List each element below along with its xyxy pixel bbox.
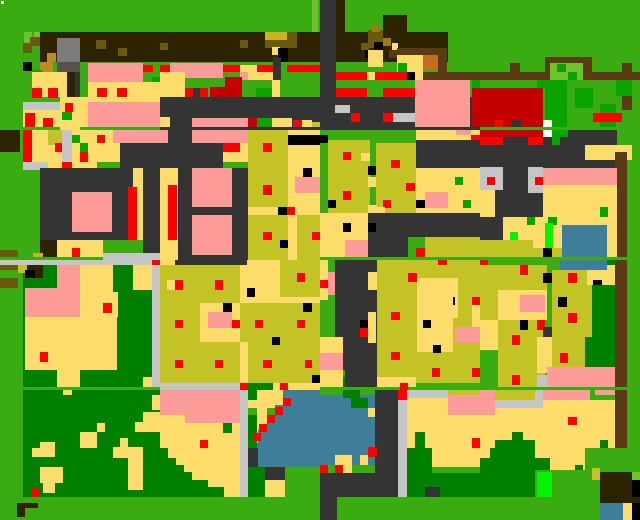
map-rect-sa <box>160 72 185 97</box>
map-rect-rd <box>40 352 48 362</box>
map-rect-rd <box>528 137 543 145</box>
map-rect-pk <box>543 168 617 185</box>
map-rect-bk <box>407 72 415 80</box>
map-rect-rd <box>391 160 400 168</box>
map-rect-rd <box>48 88 58 98</box>
map-rect-rd <box>520 265 528 275</box>
map-rect-sa <box>368 312 376 343</box>
map-rect-sa <box>368 272 377 290</box>
map-rect-fg <box>592 285 615 370</box>
map-rect-pk <box>415 80 470 127</box>
map-rect-pg <box>455 177 463 185</box>
map-rect-rd <box>257 65 273 72</box>
map-rect-rd <box>512 375 520 385</box>
map-rect-rd <box>280 383 288 390</box>
map-rect-fg <box>248 383 273 390</box>
map-rect-bk <box>25 270 35 278</box>
map-rect-dg <box>232 168 248 260</box>
map-rect-rd <box>240 383 248 390</box>
map-rect-bk <box>416 200 425 208</box>
map-rect-bk <box>320 135 328 143</box>
map-rect-wh <box>1 1 4 4</box>
map-rect-sa <box>288 383 320 390</box>
map-rect-wa <box>562 225 607 257</box>
map-rect-sb <box>583 57 592 80</box>
map-rect-sa <box>240 143 248 152</box>
map-rect-sa <box>607 225 617 257</box>
map-rect-sa <box>97 423 105 432</box>
map-rect-pk <box>208 312 232 328</box>
map-rect-sa <box>80 292 118 317</box>
map-rect-pk <box>160 390 240 415</box>
map-rect-rd <box>283 398 291 406</box>
map-rect-sa <box>152 395 160 410</box>
map-rect-rd <box>398 390 407 400</box>
map-rect-db <box>336 0 345 32</box>
map-rect-dg <box>512 120 521 127</box>
map-rect-sb <box>615 260 627 387</box>
map-rect-rd <box>223 143 240 152</box>
map-rect-rd <box>320 465 328 473</box>
map-rect-lb <box>372 25 380 32</box>
map-rect-fg <box>480 470 535 497</box>
map-rect-rd <box>287 65 320 72</box>
map-rect-rd <box>215 280 223 290</box>
map-rect-dg <box>345 370 377 387</box>
map-rect-sa <box>248 72 273 80</box>
map-rect-ol <box>425 237 480 257</box>
map-rect-rd <box>432 368 440 377</box>
map-rect-rd <box>232 320 240 328</box>
map-rect-rd <box>65 103 73 112</box>
map-rect-dg <box>192 207 232 215</box>
map-rect-bk <box>223 303 232 312</box>
game-map-canvas[interactable] <box>0 0 640 520</box>
map-rect-dg <box>120 143 160 168</box>
map-rect-pk <box>480 390 495 415</box>
map-rect-sa <box>623 503 632 520</box>
map-rect-fg <box>248 415 257 448</box>
map-rect-dr <box>225 77 242 87</box>
map-rect-mu <box>33 253 43 257</box>
map-rect-sa <box>120 438 128 447</box>
map-rect-sa <box>135 422 143 432</box>
map-rect-rd <box>335 465 343 473</box>
map-rect-bk <box>423 320 431 328</box>
map-rect-rd <box>472 368 480 377</box>
map-rect-sv <box>407 390 448 398</box>
map-rect-dg <box>320 473 375 497</box>
map-rect-bk <box>558 297 567 307</box>
map-rect-bk <box>632 503 640 520</box>
map-rect-bk <box>368 223 376 232</box>
map-rect-ol <box>248 130 288 207</box>
map-rect-sa <box>167 280 175 290</box>
map-rect-pk <box>425 192 448 208</box>
map-rect-pk <box>520 295 545 312</box>
map-rect-pg <box>72 135 80 143</box>
map-rect-rd <box>293 120 302 127</box>
map-rect-sa <box>480 190 495 217</box>
map-rect-rd <box>25 113 35 127</box>
map-rect-fg <box>407 448 432 473</box>
map-rect-sa <box>32 448 40 457</box>
map-rect-sv <box>398 400 407 497</box>
map-rect-sv <box>240 390 248 497</box>
map-rect-pk <box>192 118 248 127</box>
map-rect-mb <box>0 250 18 257</box>
map-rect-sa <box>43 483 55 493</box>
map-rect-sa <box>302 120 312 127</box>
map-rect-sa <box>415 72 423 80</box>
map-rect-rd <box>259 424 267 432</box>
map-rect-mb <box>361 43 369 50</box>
map-rect-pg <box>256 88 272 97</box>
map-rect-rd <box>185 88 193 97</box>
map-rect-dg <box>375 390 400 497</box>
map-rect-wa <box>560 260 607 270</box>
map-rect-db <box>67 72 75 97</box>
map-rect-fg <box>160 448 168 497</box>
map-rect-sv <box>393 113 415 122</box>
map-rect-pg <box>257 118 272 127</box>
map-rect-bk <box>247 288 255 297</box>
map-rect-rd <box>267 415 275 423</box>
map-rect-sa <box>143 377 152 387</box>
map-rect-rd <box>32 488 40 497</box>
map-rect-rd <box>263 185 272 195</box>
map-rect-ng <box>545 223 553 248</box>
map-rect-pg <box>398 63 407 72</box>
map-rect-rd <box>472 297 480 305</box>
map-rect-dg <box>368 213 408 257</box>
map-rect-pk <box>595 390 617 395</box>
map-rect-sa <box>143 412 160 432</box>
map-rect-sb <box>389 50 397 58</box>
map-rect-rd <box>375 72 407 80</box>
map-rect-sb <box>397 48 447 55</box>
map-rect-fg <box>223 423 232 433</box>
map-rect-sv <box>23 102 60 110</box>
map-rect-st <box>57 38 80 62</box>
map-rect-sa <box>80 102 88 127</box>
map-rect-bk <box>543 273 552 283</box>
map-rect-lb <box>383 38 391 46</box>
map-rect-sa <box>80 432 97 448</box>
map-rect-rd <box>360 328 368 337</box>
map-rect-sa <box>57 370 80 387</box>
map-rect-g <box>627 160 640 257</box>
map-rect-lg <box>632 472 640 480</box>
map-rect-pk <box>25 288 80 317</box>
map-rect-wa <box>258 430 320 467</box>
map-rect-sa <box>63 390 72 395</box>
map-rect-sa <box>265 480 285 497</box>
map-rect-mb <box>23 43 32 53</box>
map-rect-sa <box>368 50 383 67</box>
map-rect-pk <box>320 353 343 370</box>
map-rect-rd <box>23 130 32 162</box>
map-rect-dg <box>143 168 160 257</box>
map-rect-sa <box>240 342 248 383</box>
map-rect-bk <box>272 337 280 345</box>
map-rect-rd <box>287 207 295 215</box>
map-rect-bk <box>433 345 441 353</box>
map-rect-sa <box>223 152 248 162</box>
map-rect-rd <box>568 417 577 425</box>
map-rect-sv <box>535 390 543 400</box>
map-rect-dg <box>273 57 281 80</box>
map-rect-rd <box>336 88 367 97</box>
map-rect-mb <box>287 32 297 48</box>
map-rect-sa <box>133 265 152 290</box>
map-rect-mb <box>240 40 248 48</box>
map-rect-pg <box>575 88 593 108</box>
map-rect-sv <box>160 383 240 390</box>
map-rect-ol <box>248 215 320 260</box>
map-rect-pk <box>543 390 590 400</box>
map-rect-pk <box>456 130 471 135</box>
map-rect-pg <box>527 217 535 225</box>
map-rect-wh <box>543 120 552 127</box>
map-rect-rd <box>215 360 223 368</box>
map-rect-dg <box>178 143 192 260</box>
map-rect-rd <box>560 353 568 363</box>
map-rect-dg <box>425 487 440 497</box>
map-rect-pk <box>295 177 320 193</box>
map-rect-bk <box>280 240 288 248</box>
map-rect-rd <box>438 260 447 265</box>
map-rect-rd <box>263 232 272 240</box>
map-rect-rd <box>160 65 170 72</box>
map-rect-rd <box>472 438 480 448</box>
map-rect-rd <box>32 88 42 98</box>
map-rect-bk <box>543 248 552 257</box>
map-rect-fg <box>480 458 550 470</box>
map-rect-rd <box>383 113 393 122</box>
map-rect-rd <box>223 65 240 72</box>
map-rect-rd <box>275 407 283 415</box>
map-rect-fg <box>343 390 360 398</box>
map-rect-rd <box>43 118 53 127</box>
map-rect-pg <box>552 130 568 137</box>
map-rect-rd <box>255 320 263 328</box>
map-rect-pg <box>62 112 72 120</box>
map-rect-wa <box>600 503 623 520</box>
map-rect-sa <box>113 447 143 458</box>
map-rect-rd <box>368 447 377 457</box>
map-rect-pg <box>472 80 480 88</box>
map-rect-dg <box>408 213 480 237</box>
map-rect-pk <box>113 130 160 143</box>
map-rect-sb <box>510 63 520 72</box>
map-rect-sa <box>480 320 498 350</box>
map-rect-sa <box>160 117 170 127</box>
map-rect-pk <box>72 192 112 232</box>
map-rect-fg <box>407 473 480 497</box>
map-rect-sa <box>160 415 185 423</box>
map-rect-fg <box>248 390 257 400</box>
map-rect-sa <box>367 72 375 80</box>
map-rect-pk <box>192 168 232 207</box>
map-rect-rd <box>416 248 425 257</box>
map-rect-fg <box>585 337 592 370</box>
map-rect-rd <box>200 88 208 97</box>
map-rect-ol <box>495 390 535 400</box>
map-rect-pk <box>88 63 143 82</box>
map-rect-wh <box>543 130 552 137</box>
map-rect-fg <box>351 398 368 408</box>
map-rect-sv <box>103 253 160 260</box>
map-rect-ob <box>423 55 438 70</box>
map-rect-dr <box>248 118 257 127</box>
map-rect-sv <box>495 400 543 408</box>
map-rect-rd <box>312 232 320 240</box>
map-rect-dr <box>480 130 543 137</box>
map-rect-rd <box>406 183 415 191</box>
map-rect-sa <box>376 377 416 387</box>
map-rect-pk <box>455 327 480 343</box>
map-rect-rd <box>97 135 105 143</box>
map-rect-sa <box>360 455 368 465</box>
map-rect-lg <box>312 0 318 32</box>
map-rect-rd <box>263 360 272 368</box>
map-rect-fg <box>512 432 523 440</box>
map-rect-mb <box>0 278 18 288</box>
map-rect-ol <box>592 468 600 480</box>
map-rect-sa <box>272 118 292 127</box>
map-rect-rd <box>343 152 351 160</box>
map-rect-gb <box>57 62 80 72</box>
map-rect-rd <box>487 177 495 185</box>
map-rect-rd <box>103 303 112 313</box>
map-rect-mb <box>160 43 168 50</box>
map-rect-dg <box>320 497 337 520</box>
map-rect-sb <box>423 72 640 80</box>
map-rect-dg <box>168 130 192 143</box>
map-rect-pk <box>547 367 615 387</box>
map-rect-rd <box>297 320 305 328</box>
map-rect-rd <box>72 248 80 257</box>
map-rect-dr <box>472 88 480 127</box>
map-rect-sa <box>272 80 280 97</box>
map-rect-pk <box>185 415 240 423</box>
map-rect-bk <box>23 62 32 71</box>
map-rect-sv <box>62 130 72 162</box>
map-rect-rd <box>568 313 577 323</box>
map-rect-ol <box>312 122 320 127</box>
map-rect-bk <box>360 320 368 328</box>
map-rect-rd <box>175 320 183 328</box>
map-rect-rd <box>495 120 503 127</box>
map-rect-rd <box>391 352 400 360</box>
map-rect-pg <box>616 80 632 96</box>
map-rect-pg <box>537 80 545 88</box>
map-rect-rd <box>568 273 577 283</box>
map-rect-pg <box>600 207 608 217</box>
map-rect-fg <box>176 465 184 497</box>
map-rect-sa <box>361 153 370 161</box>
map-rect-rd <box>128 187 137 240</box>
map-rect-sb <box>615 390 627 448</box>
map-rect-ol <box>240 303 320 383</box>
map-rect-fg <box>168 458 176 497</box>
map-rect-pk <box>345 240 368 257</box>
map-rect-rd <box>535 177 543 185</box>
map-rect-sa <box>472 305 480 327</box>
map-rect-pk <box>448 395 480 415</box>
map-rect-rd <box>383 88 415 97</box>
map-rect-sa <box>128 458 143 490</box>
map-rect-oc <box>47 53 56 62</box>
map-rect-lg <box>550 63 583 80</box>
map-rect-pg <box>80 143 88 152</box>
map-rect-fg <box>248 467 265 497</box>
map-rect-rd <box>593 113 622 122</box>
map-rect-mu <box>265 32 287 40</box>
map-rect-sa <box>240 65 257 72</box>
map-rect-pk <box>88 102 160 127</box>
map-rect-db <box>0 130 20 152</box>
map-rect-sv <box>537 375 547 387</box>
map-rect-rd <box>168 185 177 240</box>
map-rect-dg <box>416 140 480 168</box>
map-rect-db <box>17 508 25 517</box>
map-rect-rd <box>143 65 153 72</box>
map-rect-rd <box>480 137 503 145</box>
map-rect-fg <box>600 440 608 448</box>
map-rect-ol <box>552 337 585 370</box>
map-rect-rd <box>253 433 261 441</box>
map-rect-pg <box>552 137 560 145</box>
map-rect-rd <box>200 440 208 448</box>
map-rect-rd <box>80 152 88 162</box>
map-rect-sv <box>335 105 350 113</box>
map-rect-pg <box>568 72 577 80</box>
map-rect-rd <box>175 280 183 290</box>
map-rect-pg <box>557 64 566 72</box>
map-rect-sa <box>80 265 113 292</box>
map-rect-bk <box>303 303 312 312</box>
map-rect-sv <box>152 265 160 387</box>
map-rect-fg <box>490 448 535 458</box>
map-rect-rd <box>351 113 360 122</box>
map-rect-fg <box>415 432 425 448</box>
map-rect-mb <box>0 265 18 270</box>
map-rect-rd <box>263 143 272 152</box>
map-rect-ng <box>537 472 552 497</box>
map-rect-bk <box>343 223 351 232</box>
map-rect-rd <box>512 335 520 345</box>
map-rect-rd <box>175 360 183 368</box>
map-rect-sa <box>288 215 297 260</box>
map-rect-fg <box>184 472 192 497</box>
map-rect-rd <box>408 273 417 282</box>
map-rect-bk <box>374 42 383 50</box>
map-rect-dr <box>210 87 242 97</box>
map-rect-bk <box>328 200 336 208</box>
map-rect-rd <box>336 72 367 80</box>
map-rect-rd <box>343 191 351 200</box>
map-rect-mb <box>118 48 127 56</box>
map-rect-bk <box>520 320 528 330</box>
map-rect-mb <box>96 40 106 49</box>
map-rect-sa <box>40 467 63 483</box>
map-rect-sa <box>25 317 117 370</box>
map-rect-sa <box>40 442 55 457</box>
map-rect-rd <box>305 360 312 368</box>
map-rect-bk <box>368 166 376 175</box>
